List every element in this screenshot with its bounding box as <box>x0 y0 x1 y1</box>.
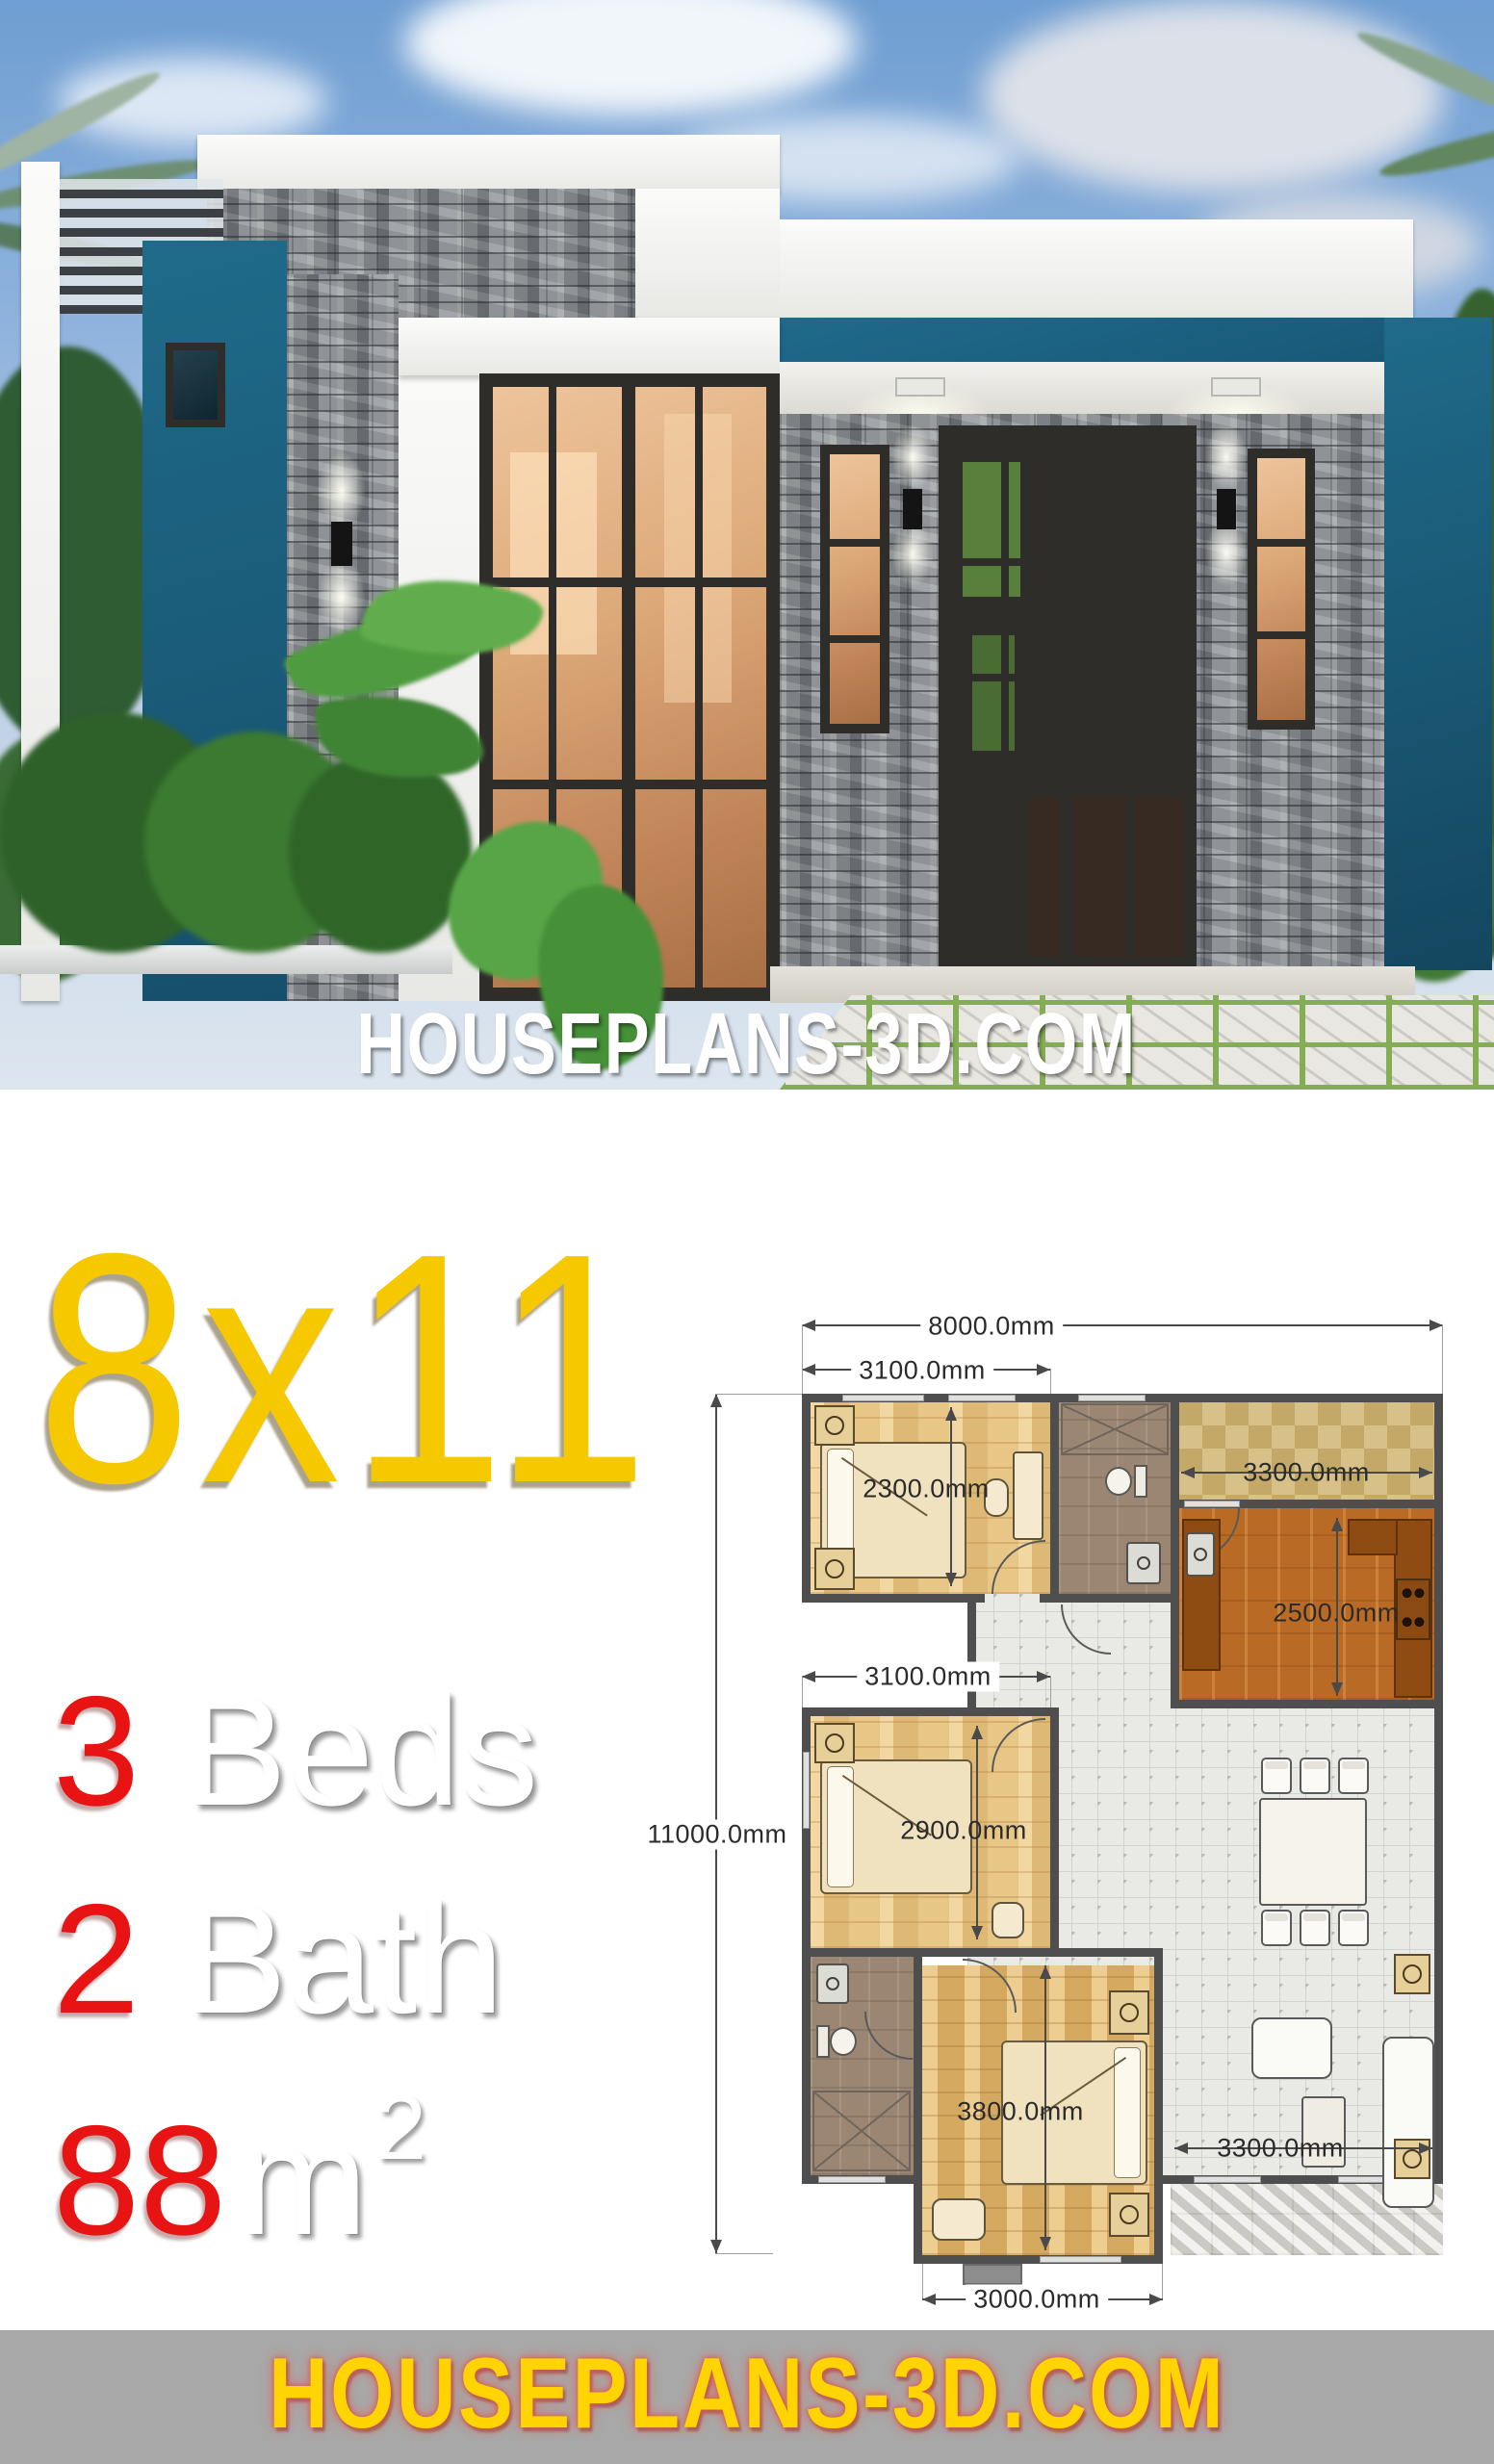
area-exponent: 2 <box>375 2077 426 2179</box>
wall <box>1154 1957 1163 2264</box>
wall <box>802 1394 811 1603</box>
sofa <box>1382 2037 1434 2208</box>
sconce-glow <box>1205 423 1248 491</box>
window-symbol <box>1040 2256 1121 2263</box>
window-symbol <box>803 1752 810 1829</box>
poster-page: HOUSEPLANS-3D.COM 8x11 3Beds 2Bath 88m2 <box>0 0 1494 2464</box>
dim-label: 3000.0mm <box>966 2285 1108 2315</box>
door-mullion <box>952 789 1183 797</box>
door-reflection-green <box>963 462 1020 597</box>
stove <box>1396 1578 1430 1640</box>
extension-line <box>1442 1324 1443 1394</box>
door-mullion <box>952 558 1183 566</box>
dim-label: 3800.0mm <box>957 2097 1084 2127</box>
sconce-glow <box>891 423 934 491</box>
dim-label: 2900.0mm <box>900 1816 1027 1846</box>
cloud <box>404 0 857 115</box>
side-table <box>1394 1954 1430 1994</box>
extension-line <box>802 1324 803 1394</box>
bush <box>289 751 472 953</box>
nightstand <box>814 1405 855 1446</box>
wall <box>1040 1594 1178 1603</box>
dim-label: 2500.0mm <box>1273 1599 1400 1629</box>
dining-chair <box>1261 1910 1292 1946</box>
dim-label: 8000.0mm <box>920 1312 1063 1342</box>
nightstand <box>814 1723 855 1763</box>
wall-sconce <box>1217 489 1236 529</box>
spec-beds: 3Beds <box>53 1674 538 1830</box>
nightstand <box>814 1548 855 1590</box>
ceiling-light <box>1211 377 1261 397</box>
area-unit: m <box>238 2093 368 2268</box>
shower <box>1061 1403 1169 1455</box>
roof-parapet <box>635 189 780 320</box>
window-mullion <box>493 577 766 587</box>
dim-label: 3300.0mm <box>1243 1458 1370 1488</box>
extension-line <box>922 2264 923 2298</box>
wall <box>967 1594 976 1716</box>
nightstand <box>1109 1990 1149 2035</box>
window-mullion <box>830 539 880 547</box>
wall-sconce <box>903 489 922 529</box>
toilet-tank <box>816 2025 830 2058</box>
door-mullion <box>1001 439 1009 957</box>
extension-line <box>1162 2264 1163 2298</box>
window-symbol <box>818 2176 886 2183</box>
door-mullion <box>952 674 1183 681</box>
nightstand <box>1109 2193 1149 2237</box>
extension-line <box>1050 1676 1051 1707</box>
window-symbol <box>842 1395 924 1401</box>
window-symbol <box>948 1395 1016 1401</box>
footer-bar: HOUSEPLANS-3D.COM <box>0 2330 1494 2464</box>
dim-label: 11000.0mm <box>639 1820 794 1850</box>
sconce-glow <box>318 558 366 635</box>
roof-parapet <box>770 219 1413 320</box>
dining-chair <box>1338 1758 1369 1794</box>
dining-chair <box>1338 1910 1369 1946</box>
wall-sconce <box>331 522 352 566</box>
extension-line <box>802 1676 803 1707</box>
dim-label: 2300.0mm <box>863 1475 990 1504</box>
wall <box>1050 1394 1059 1594</box>
extension-line <box>1050 1369 1051 1394</box>
side-window-glass <box>830 454 880 724</box>
dim-label: 3100.0mm <box>857 1662 999 1692</box>
door-mullion <box>1126 439 1134 957</box>
wall <box>802 1707 1050 1716</box>
door-interior-dark <box>1030 789 1184 957</box>
hero-site-title: HOUSEPLANS-3D.COM <box>0 1001 1494 1088</box>
sconce-glow <box>1205 520 1248 587</box>
floor-plan: 8000.0mm 3100.0mm 11000.0mm 2300.0mm 330… <box>674 1290 1494 2334</box>
teal-end-wall <box>1384 318 1492 970</box>
side-window-glass <box>1257 458 1305 720</box>
window-mullion <box>830 635 880 643</box>
armchair <box>1251 2017 1332 2079</box>
desk <box>1013 1451 1043 1540</box>
toilet-tank <box>1134 1465 1147 1498</box>
dim-label: 3100.0mm <box>851 1356 993 1386</box>
dining-chair <box>1300 1910 1330 1946</box>
sconce-glow <box>891 520 934 587</box>
stool <box>992 1902 1024 1938</box>
dining-chair <box>1300 1758 1330 1794</box>
wall <box>1171 1700 1443 1708</box>
entry-step <box>963 2264 1022 2285</box>
dining-table <box>1259 1798 1367 1906</box>
window-mullion <box>493 780 766 789</box>
wall <box>914 1957 922 2264</box>
extension-line <box>715 1394 802 1395</box>
small-window-glass <box>173 350 218 420</box>
door-mullion <box>1059 439 1074 957</box>
spec-area: 88m2 <box>53 2083 426 2259</box>
footer-site-title: HOUSEPLANS-3D.COM <box>0 2344 1494 2444</box>
toilet-bowl <box>1105 1467 1132 1496</box>
shower <box>812 2091 911 2171</box>
window-head <box>399 318 780 375</box>
area-value: 88 <box>53 2093 226 2268</box>
roof-parapet <box>197 135 780 194</box>
bath-label: Bath <box>183 1872 503 2046</box>
wall <box>802 1948 1163 1957</box>
window-symbol <box>1078 1395 1146 1401</box>
kitchen-sink <box>1186 1532 1215 1577</box>
wall <box>1434 1394 1443 2184</box>
plan-size-headline: 8x11 <box>37 1205 658 1532</box>
wall <box>802 1594 985 1603</box>
wall <box>1050 1707 1059 1957</box>
beds-count: 3 <box>53 1664 140 1838</box>
door-opening <box>1184 1501 1240 1507</box>
ceiling-light <box>895 377 945 397</box>
window-mullion <box>1257 539 1305 547</box>
dim-label: 3300.0mm <box>1217 2134 1344 2164</box>
dim-line <box>802 1324 1443 1326</box>
toilet-bowl <box>830 2027 857 2056</box>
dining-chair <box>1261 1758 1292 1794</box>
sconce-glow <box>318 452 366 529</box>
bathroom-sink <box>1126 1542 1161 1584</box>
wall <box>1171 1394 1179 1708</box>
beds-label: Beds <box>183 1664 538 1838</box>
bathroom-sink <box>816 1963 849 2004</box>
extension-line <box>715 2253 773 2254</box>
window-mullion <box>695 387 703 988</box>
house-render-photo: HOUSEPLANS-3D.COM <box>0 0 1494 1090</box>
window-mullion <box>1257 631 1305 639</box>
kitchen-counter <box>1348 1519 1398 1555</box>
desk <box>932 2198 986 2241</box>
bath-count: 2 <box>53 1872 140 2046</box>
spec-bath: 2Bath <box>53 1882 503 2038</box>
window-symbol <box>1194 2176 1261 2183</box>
cloud <box>982 0 1444 192</box>
